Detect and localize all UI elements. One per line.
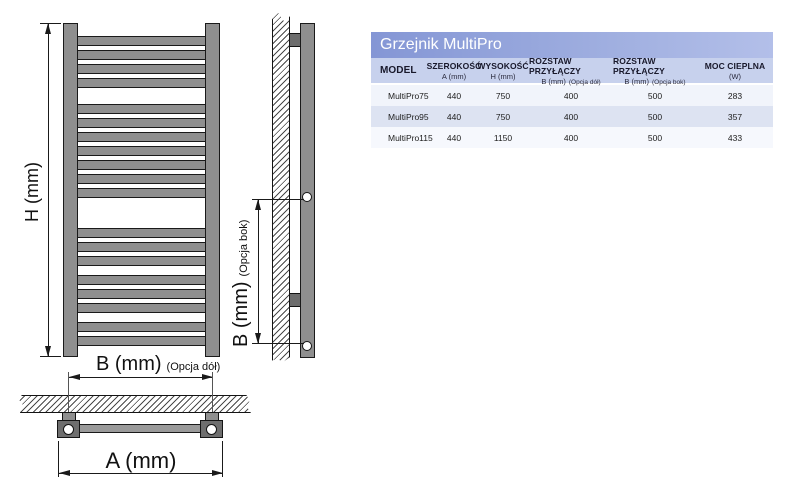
radiator-rung (77, 104, 206, 114)
cell-power: 357 (697, 106, 773, 127)
b-bottom-dimension-label: B (mm)(Opcja dół) (96, 353, 220, 376)
b-side-arrow-top (255, 199, 261, 210)
h-dimension-tick-top (40, 23, 61, 24)
b-side-dimension-label: B (mm)(Opcja bok) (230, 220, 253, 347)
right-collector-tube (205, 23, 220, 357)
column-title: WYSOKOŚĆ (477, 61, 528, 71)
column-title: SZEROKOŚĆ (427, 61, 482, 71)
radiator-rung (77, 36, 206, 46)
a-dimension-label: A (mm) (59, 448, 223, 474)
bottom-connecting-tube (79, 424, 202, 433)
cell-spacing-side: 500 (613, 106, 697, 127)
cell-power: 283 (697, 85, 773, 106)
h-dimension-arrow-top (45, 23, 51, 34)
radiator-rung (77, 228, 206, 238)
table-row: MultiPro95 440 750 400 500 357 (371, 106, 773, 127)
cell-spacing-bottom: 400 (529, 85, 613, 106)
cell-model: MultiPro115 (371, 127, 431, 148)
h-dimension-line (48, 23, 49, 357)
cell-power: 433 (697, 127, 773, 148)
b-side-arrow-bottom (255, 333, 261, 344)
radiator-rung (77, 303, 206, 313)
column-header-spacing-side: ROZSTAW PRZYŁĄCZY B (mm)(Opcja bok) (613, 58, 697, 83)
radiator-rung (77, 275, 206, 285)
column-title: MOC CIEPLNA (705, 61, 766, 71)
radiator-rung (77, 64, 206, 74)
cell-spacing-side: 500 (613, 127, 697, 148)
right-valve-port (206, 424, 217, 435)
cell-spacing-side: 500 (613, 85, 697, 106)
column-title: ROZSTAW PRZYŁĄCZY (529, 56, 613, 76)
bottom-wall-section (19, 395, 251, 413)
b-side-label-note: (Opcja bok) (238, 220, 250, 277)
cell-width: 440 (431, 106, 477, 127)
left-collector-tube (63, 23, 78, 357)
cell-width: 440 (431, 85, 477, 106)
b-bottom-label-main: B (mm) (96, 353, 162, 375)
cell-width: 440 (431, 127, 477, 148)
table-body: MultiPro75 440 750 400 500 283 MultiPro9… (371, 85, 773, 148)
column-header-power: MOC CIEPLNA (W) (697, 58, 773, 83)
cell-height: 1150 (477, 127, 529, 148)
radiator-rung (77, 188, 206, 198)
radiator-rung (77, 132, 206, 142)
cell-model: MultiPro75 (371, 85, 431, 106)
column-subtitle: (W) (729, 72, 741, 81)
left-valve-port (63, 424, 74, 435)
radiator-rung (77, 289, 206, 299)
side-profile-tube (300, 23, 315, 358)
column-header-model: MODEL (371, 58, 431, 83)
table-header-row: MODEL SZEROKOŚĆ A (mm) WYSOKOŚĆ H (mm) R… (371, 58, 773, 85)
side-connection-top (302, 192, 312, 202)
radiator-rung (77, 146, 206, 156)
radiator-rung (77, 336, 206, 346)
b-side-label-main: B (mm) (230, 281, 252, 347)
radiator-rung (77, 322, 206, 332)
radiator-rung (77, 160, 206, 170)
column-subtitle: H (mm) (491, 72, 516, 81)
h-dimension-label: H (mm) (22, 162, 43, 222)
side-wall-section (272, 13, 290, 362)
column-header-height: WYSOKOŚĆ H (mm) (477, 58, 529, 83)
radiator-rung (77, 118, 206, 128)
cell-model: MultiPro95 (371, 106, 431, 127)
column-title: MODEL (380, 65, 417, 76)
spec-table: Grzejnik MultiPro MODEL SZEROKOŚĆ A (mm)… (371, 32, 773, 148)
product-diagram-image: H (mm) B (mm)(Opcja bok) B (mm)(Opcja dó… (0, 0, 800, 503)
table-title: Grzejnik MultiPro (371, 32, 773, 58)
radiator-rung (77, 242, 206, 252)
table-row: MultiPro75 440 750 400 500 283 (371, 85, 773, 106)
cell-height: 750 (477, 106, 529, 127)
b-side-dimension-line (258, 199, 259, 344)
cell-spacing-bottom: 400 (529, 106, 613, 127)
cell-spacing-bottom: 400 (529, 127, 613, 148)
column-header-spacing-bottom: ROZSTAW PRZYŁĄCZY B (mm)(Opcja dół) (529, 58, 613, 83)
column-header-width: SZEROKOŚĆ A (mm) (431, 58, 477, 83)
column-subtitle: A (mm) (442, 72, 466, 81)
radiator-rung (77, 256, 206, 266)
radiator-rung (77, 174, 206, 184)
column-title: ROZSTAW PRZYŁĄCZY (613, 56, 697, 76)
radiator-rung (77, 50, 206, 60)
b-bottom-arrow-left (69, 374, 80, 380)
cell-height: 750 (477, 85, 529, 106)
radiator-rung (77, 78, 206, 88)
h-dimension-tick-bottom (40, 356, 61, 357)
b-bottom-dimension-line (69, 377, 213, 378)
table-row: MultiPro115 440 1150 400 500 433 (371, 127, 773, 148)
